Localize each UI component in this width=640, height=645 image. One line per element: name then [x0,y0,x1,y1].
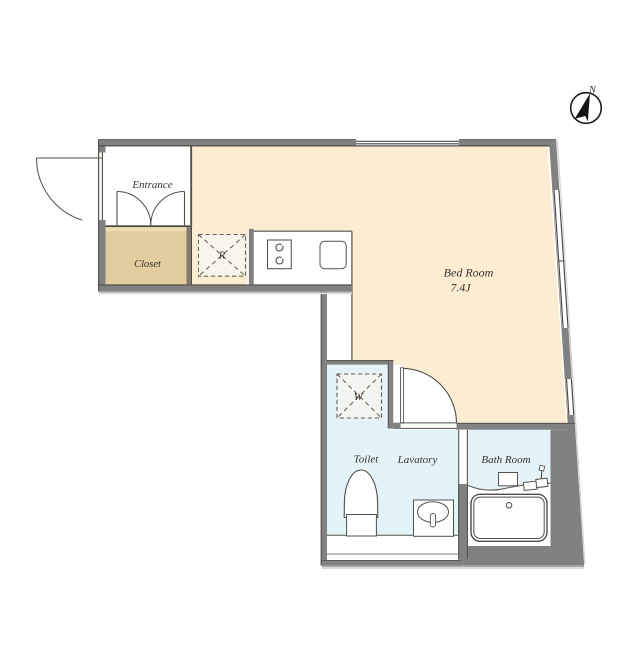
svg-text:W: W [354,391,364,403]
svg-text:Entrance: Entrance [131,179,172,191]
svg-text:Closet: Closet [134,259,162,270]
svg-text:N: N [588,85,597,96]
svg-text:7.4J: 7.4J [451,281,472,295]
svg-text:Bed Room: Bed Room [444,266,494,280]
svg-text:R: R [218,250,226,261]
svg-text:Bath Room: Bath Room [481,454,530,466]
svg-text:Lavatory: Lavatory [397,454,438,466]
svg-text:Toilet: Toilet [354,453,380,465]
